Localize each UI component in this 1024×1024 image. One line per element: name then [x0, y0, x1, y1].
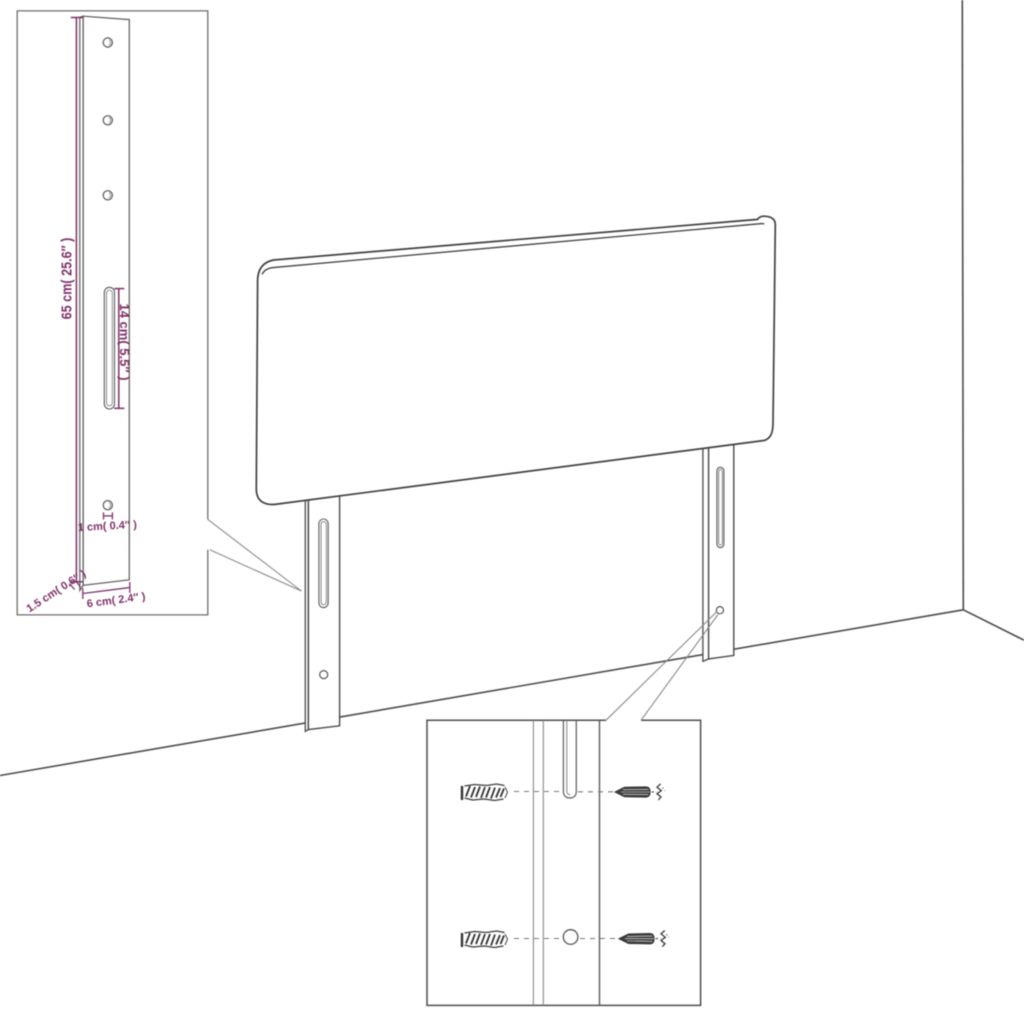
svg-text:65 cm( 25.6″ ): 65 cm( 25.6″ ) [57, 238, 74, 320]
svg-text:14 cm( 5.5″ ): 14 cm( 5.5″ ) [117, 303, 132, 380]
